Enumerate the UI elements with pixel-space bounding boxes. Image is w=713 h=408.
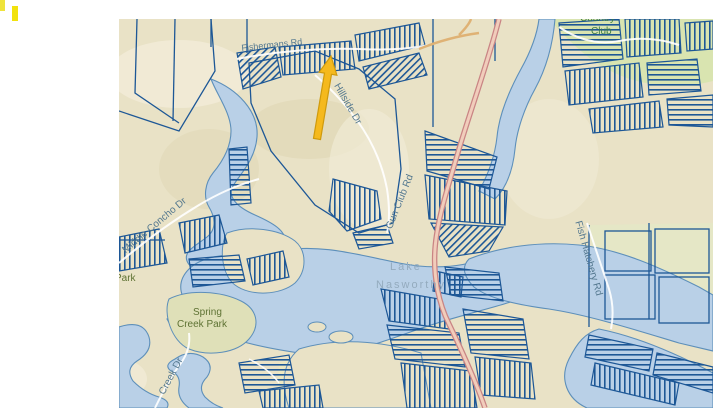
- map-viewport[interactable]: Fishermans Rd Hillside Dr Gun Club Rd Mi…: [119, 19, 713, 408]
- yellow-mark-1: [0, 0, 5, 11]
- yellow-mark-2: [12, 6, 18, 21]
- map-canvas: [119, 19, 713, 408]
